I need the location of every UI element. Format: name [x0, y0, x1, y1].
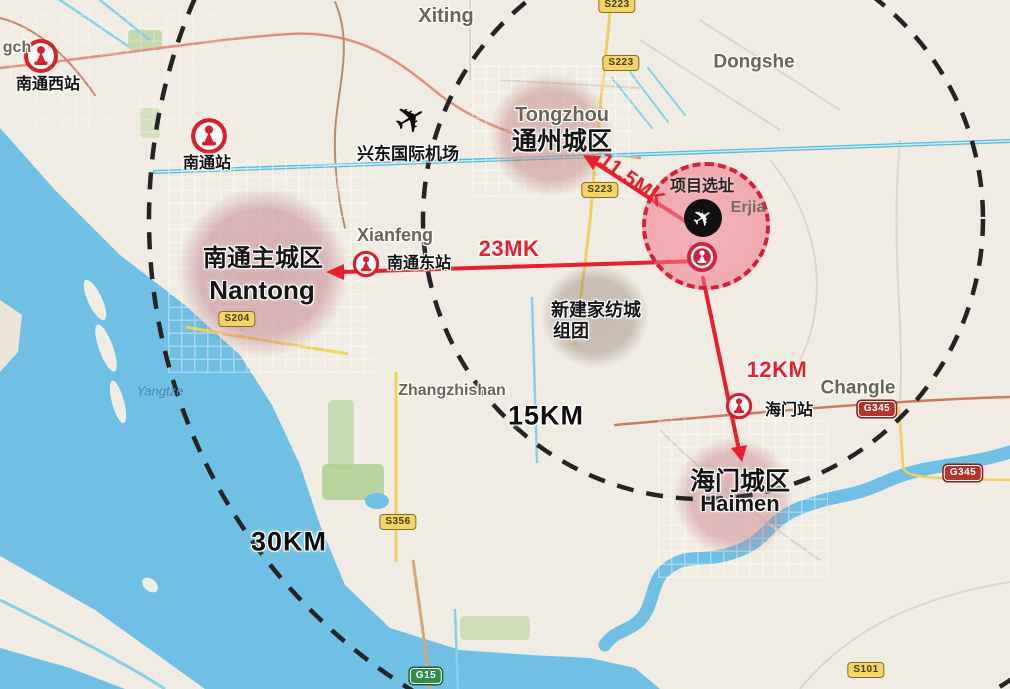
city-label-nantong-en: Nantong — [209, 277, 314, 303]
arrow-to-haimen — [703, 278, 739, 450]
station-label-haimen: 海门站 — [765, 403, 813, 419]
arrowhead-haimen — [731, 445, 747, 462]
road-badge-g345-east: G345 — [944, 465, 982, 481]
city-label-tongzhou-zh: 通州城区 — [512, 130, 612, 155]
station-icon-nantong — [190, 117, 228, 155]
ring-label-15km: 15KM — [508, 403, 584, 430]
distance-label-nantong: 23MK — [479, 238, 540, 260]
station-label-nantong-east: 南通东站 — [387, 256, 451, 272]
road-badge-g345-west: G345 — [858, 401, 896, 417]
place-label-zhangzhishan: Zhangzhishan — [398, 383, 506, 399]
road-badge-s223-mid: S223 — [602, 55, 639, 71]
project-site-label: 项目选址 — [670, 179, 734, 195]
map-canvas[interactable]: ✈ 项目选址 南通西站 南通站 南通东站 海门站 ✈ — [0, 0, 1010, 689]
station-label-nantong: 南通站 — [183, 156, 231, 172]
road-badge-g15: G15 — [410, 668, 442, 684]
distance-label-haimen: 12KM — [747, 359, 808, 381]
road-badge-s101: S101 — [847, 662, 884, 678]
place-label-yangtze: Yangtze — [137, 385, 184, 398]
station-icon-nantong-east — [352, 250, 380, 278]
road-badge-s204: S204 — [218, 311, 255, 327]
project-railway-icon — [687, 242, 717, 272]
textile-city-label-line2: 组团 — [553, 322, 589, 340]
road-badge-s356: S356 — [379, 514, 416, 530]
project-airport-icon: ✈ — [684, 199, 722, 237]
station-icon-haimen — [725, 392, 753, 420]
place-label-xianfeng: Xianfeng — [357, 226, 433, 244]
road-badge-s223-top: S223 — [598, 0, 635, 13]
ring-label-30km: 30KM — [251, 529, 327, 556]
city-label-haimen-en: Haimen — [700, 493, 779, 515]
annotation-layer — [0, 0, 1010, 689]
city-label-tongzhou-en: Tongzhou — [515, 105, 609, 125]
place-label-changle: Changle — [821, 379, 896, 398]
plane-glyph: ✈ — [686, 200, 719, 235]
arrowhead-nantong — [326, 264, 344, 280]
railway-logo-white — [690, 245, 714, 269]
road-badge-s223-low: S223 — [581, 182, 618, 198]
place-label-dongshe: Dongshe — [713, 53, 794, 72]
city-label-nantong-zh: 南通主城区 — [203, 247, 323, 271]
place-label-partial: gch — [3, 40, 31, 56]
place-label-erjia: Erjia — [731, 200, 766, 216]
station-label-nantong-west: 南通西站 — [16, 77, 80, 93]
airport-label: 兴东国际机场 — [357, 146, 459, 163]
place-label-xiting: Xiting — [418, 6, 474, 26]
textile-city-label-line1: 新建家纺城 — [551, 301, 641, 319]
